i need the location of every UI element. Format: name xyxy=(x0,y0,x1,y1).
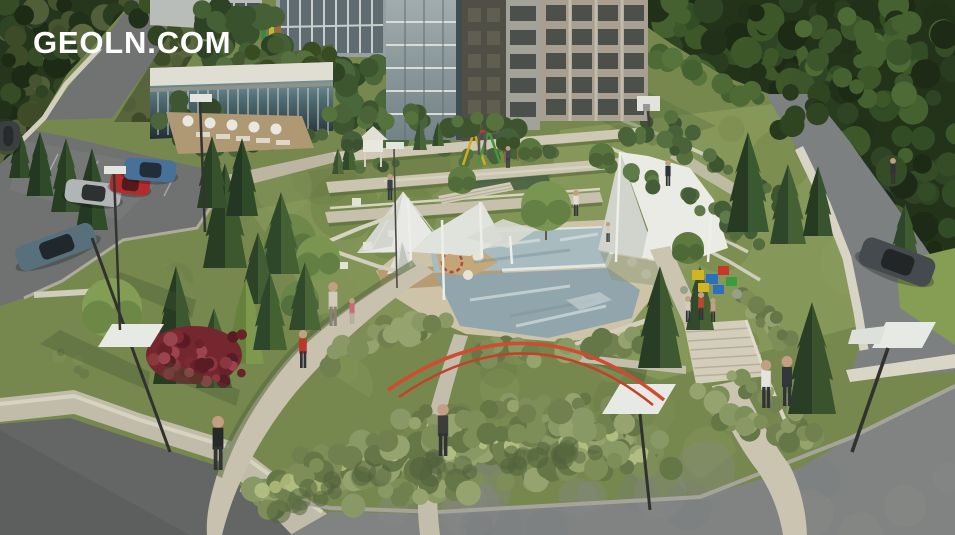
svg-text:GEOLN.COM: GEOLN.COM xyxy=(33,25,231,60)
